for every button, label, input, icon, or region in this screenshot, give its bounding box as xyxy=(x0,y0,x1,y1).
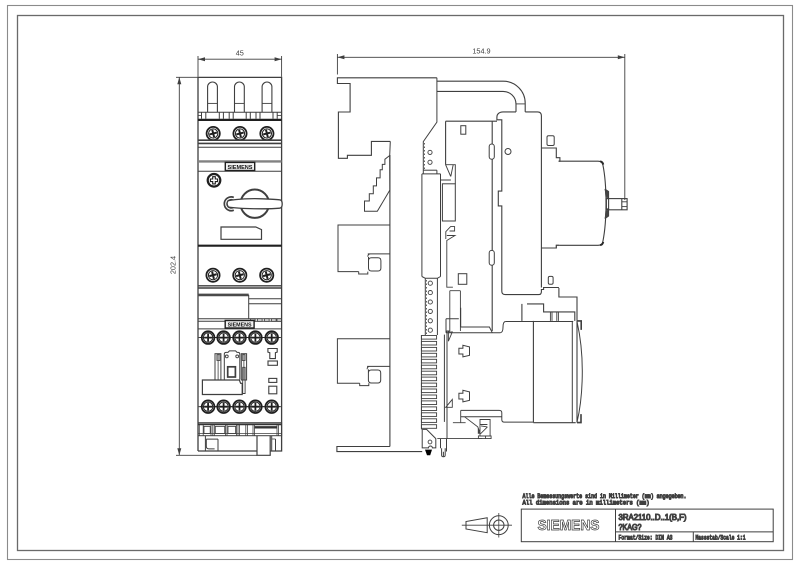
svg-text:?KAG?: ?KAG? xyxy=(619,523,642,532)
svg-text:All dimensions are in millimet: All dimensions are in millimeters (mm) xyxy=(523,499,650,506)
svg-text:SIEMENS: SIEMENS xyxy=(228,323,253,329)
svg-text:3RA2110..D..1(B,F): 3RA2110..D..1(B,F) xyxy=(619,513,687,522)
svg-text:SIEMENS: SIEMENS xyxy=(228,165,253,171)
svg-text:Format/Size: DIN A3: Format/Size: DIN A3 xyxy=(619,534,673,541)
svg-text:45: 45 xyxy=(236,49,244,58)
svg-text:154.9: 154.9 xyxy=(472,47,490,56)
svg-text:SIEMENS: SIEMENS xyxy=(538,518,600,534)
svg-text:Massstab/Scale 1:1: Massstab/Scale 1:1 xyxy=(696,534,746,541)
svg-text:202.4: 202.4 xyxy=(169,256,178,274)
